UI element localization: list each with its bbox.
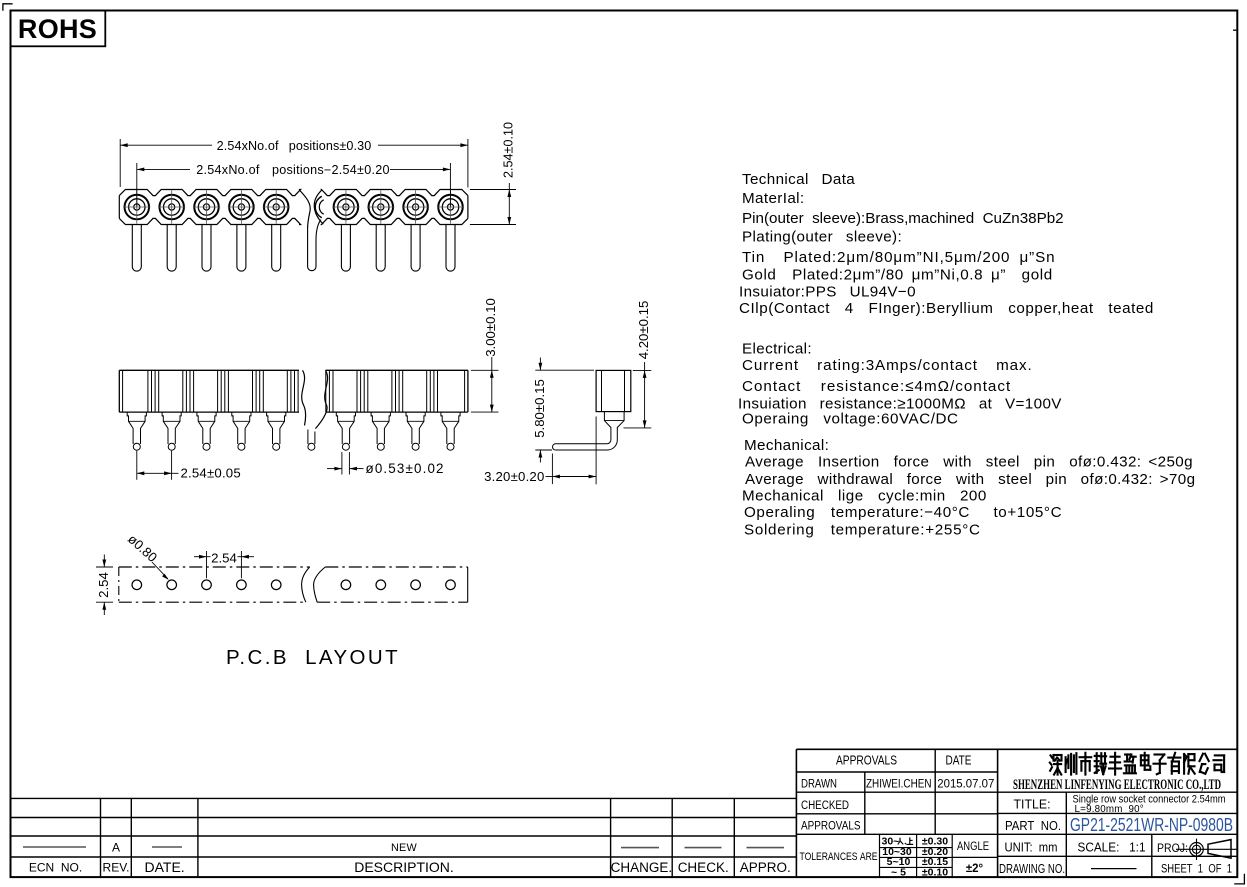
svg-text:PART NO.: PART NO.: [1005, 819, 1061, 833]
svg-text:TOLERANCES ARE: TOLERANCES ARE: [800, 851, 878, 863]
svg-text:3.00±0.10: 3.00±0.10: [483, 298, 498, 357]
svg-text:APPROVALS: APPROVALS: [801, 819, 861, 833]
svg-text:CHANGE.: CHANGE.: [611, 860, 673, 875]
svg-text:±2°: ±2°: [966, 863, 984, 875]
svg-text:SHEET 1 OF 1: SHEET 1 OF 1: [1161, 862, 1232, 876]
svg-text:2015.07.07: 2015.07.07: [937, 777, 994, 791]
svg-text:Operaing voltage:60VAC/DC: Operaing voltage:60VAC/DC: [742, 411, 959, 428]
svg-text:DRAWING NO.: DRAWING NO.: [999, 862, 1065, 876]
svg-text:PROJ:: PROJ:: [1157, 841, 1188, 855]
svg-text:CIlp(Contact 4 FInger):Beryl: CIlp(Contact 4 FInger):Beryllium copper,…: [739, 300, 1154, 317]
svg-text:Average Insertion force wit: Average Insertion force with steel pin o…: [745, 453, 1193, 470]
svg-text:TITLE:: TITLE:: [1014, 798, 1051, 812]
svg-text:ANGLE: ANGLE: [957, 839, 989, 853]
svg-text:ZHIWEI.CHEN: ZHIWEI.CHEN: [866, 777, 932, 791]
svg-text:4.20±0.15: 4.20±0.15: [636, 301, 651, 360]
svg-text:2.54xNo.of positions−2.54±0.2: 2.54xNo.of positions−2.54±0.20: [196, 163, 389, 177]
svg-text:Pin(outer sleeve):Brass,machi: Pin(outer sleeve):Brass,machined CuZn38P…: [742, 210, 1064, 227]
svg-text:ø0.80: ø0.80: [125, 531, 160, 565]
svg-text:Technical Data: Technical Data: [742, 171, 855, 188]
svg-text:Tin Plated:2μm/80μm”NI,5μm/20: Tin Plated:2μm/80μm”NI,5μm/200 μ”Sn: [742, 249, 1056, 266]
svg-text:DRAWN: DRAWN: [801, 777, 837, 791]
svg-text:CHECKED: CHECKED: [801, 798, 849, 812]
svg-text:Mechanical:: Mechanical:: [744, 437, 829, 454]
svg-text:Plating(outer sleeve):: Plating(outer sleeve):: [742, 228, 902, 245]
svg-text:ROHS: ROHS: [18, 14, 97, 44]
svg-text:DESCRIPTION.: DESCRIPTION.: [354, 859, 454, 875]
svg-text:ø0.53±0.02: ø0.53±0.02: [366, 461, 445, 476]
svg-text:Soldering temperature:+255°C: Soldering temperature:+255°C: [744, 522, 981, 539]
svg-text:2.54: 2.54: [211, 550, 237, 565]
svg-text:SCALE: 1:1: SCALE: 1:1: [1078, 840, 1146, 854]
svg-text:REV.: REV.: [103, 861, 130, 875]
svg-text:CHECK.: CHECK.: [678, 860, 729, 875]
svg-text:Average withdrawal force wi: Average withdrawal force with steel pin …: [745, 471, 1195, 488]
svg-text:2.54: 2.54: [96, 572, 111, 598]
svg-text:±0.10: ±0.10: [922, 867, 948, 879]
svg-text:L=9.80mm 90°: L=9.80mm 90°: [1075, 804, 1144, 815]
svg-text:Contact resistance:≤4mΩ/conta: Contact resistance:≤4mΩ/contact: [742, 378, 1011, 395]
svg-text:Insuiator:PPS UL94V−0: Insuiator:PPS UL94V−0: [739, 283, 916, 300]
svg-text:3.20±0.20: 3.20±0.20: [484, 469, 544, 484]
svg-text:5.80±0.15: 5.80±0.15: [532, 379, 547, 438]
svg-text:2.54±0.05: 2.54±0.05: [181, 466, 241, 481]
svg-text:GP21-2521WR-NP-0980B: GP21-2521WR-NP-0980B: [1070, 814, 1233, 835]
svg-text:UNIT: mm: UNIT: mm: [1005, 840, 1058, 854]
svg-text:SHENZHEN LINFENYING ELECTRONIC: SHENZHEN LINFENYING ELECTRONIC CO.,LTD: [1013, 777, 1221, 793]
svg-text:APPRO.: APPRO.: [740, 860, 791, 875]
svg-text:DATE: DATE: [946, 753, 972, 768]
svg-text:P.C.B LAYOUT: P.C.B LAYOUT: [226, 646, 400, 669]
svg-text:MaterIal:: MaterIal:: [742, 190, 805, 207]
svg-text:Current rating:3Amps/contact: Current rating:3Amps/contact max.: [742, 357, 1033, 374]
svg-text:DATE.: DATE.: [144, 859, 184, 875]
svg-text:2.54±0.10: 2.54±0.10: [502, 122, 516, 178]
svg-text:Mechanical lige cycle:min 2: Mechanical lige cycle:min 200: [742, 488, 987, 505]
svg-text:NEW: NEW: [391, 842, 418, 854]
svg-text:APPROVALS: APPROVALS: [836, 753, 897, 768]
svg-text:A: A: [112, 841, 120, 855]
svg-text:Operaling temperature:−40°C: Operaling temperature:−40°C to+105°C: [744, 504, 1062, 521]
svg-text:2.54xNo.of positions±0.30: 2.54xNo.of positions±0.30: [217, 139, 372, 153]
svg-text:Gold Plated:2μm”/80 μm”Ni,0.8: Gold Plated:2μm”/80 μm”Ni,0.8 μ” gold: [742, 267, 1053, 284]
svg-text:~ 5: ~ 5: [891, 867, 906, 879]
svg-text:Electrical:: Electrical:: [742, 340, 812, 357]
svg-text:ECN NO.: ECN NO.: [29, 861, 82, 875]
